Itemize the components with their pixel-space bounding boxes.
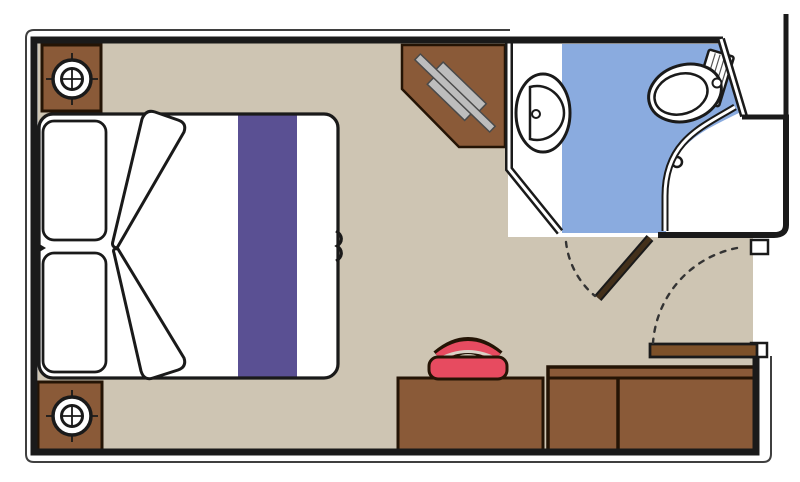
bed-runner (238, 114, 297, 378)
double-bed (36, 111, 341, 378)
bedside-cabinet-top (42, 45, 101, 111)
washbasin (516, 74, 570, 152)
pillow-bottom (43, 253, 106, 372)
stool (429, 346, 507, 380)
desk (398, 378, 543, 450)
wardrobe (548, 367, 755, 451)
pillow-top (43, 121, 106, 240)
entry-jamb-top (751, 240, 768, 254)
bedside-cabinet-bottom (38, 382, 102, 450)
entrance-door (650, 344, 757, 357)
cabin-floor-plan (0, 0, 800, 482)
floorplan-canvas (0, 0, 800, 482)
bathroom (505, 14, 789, 235)
